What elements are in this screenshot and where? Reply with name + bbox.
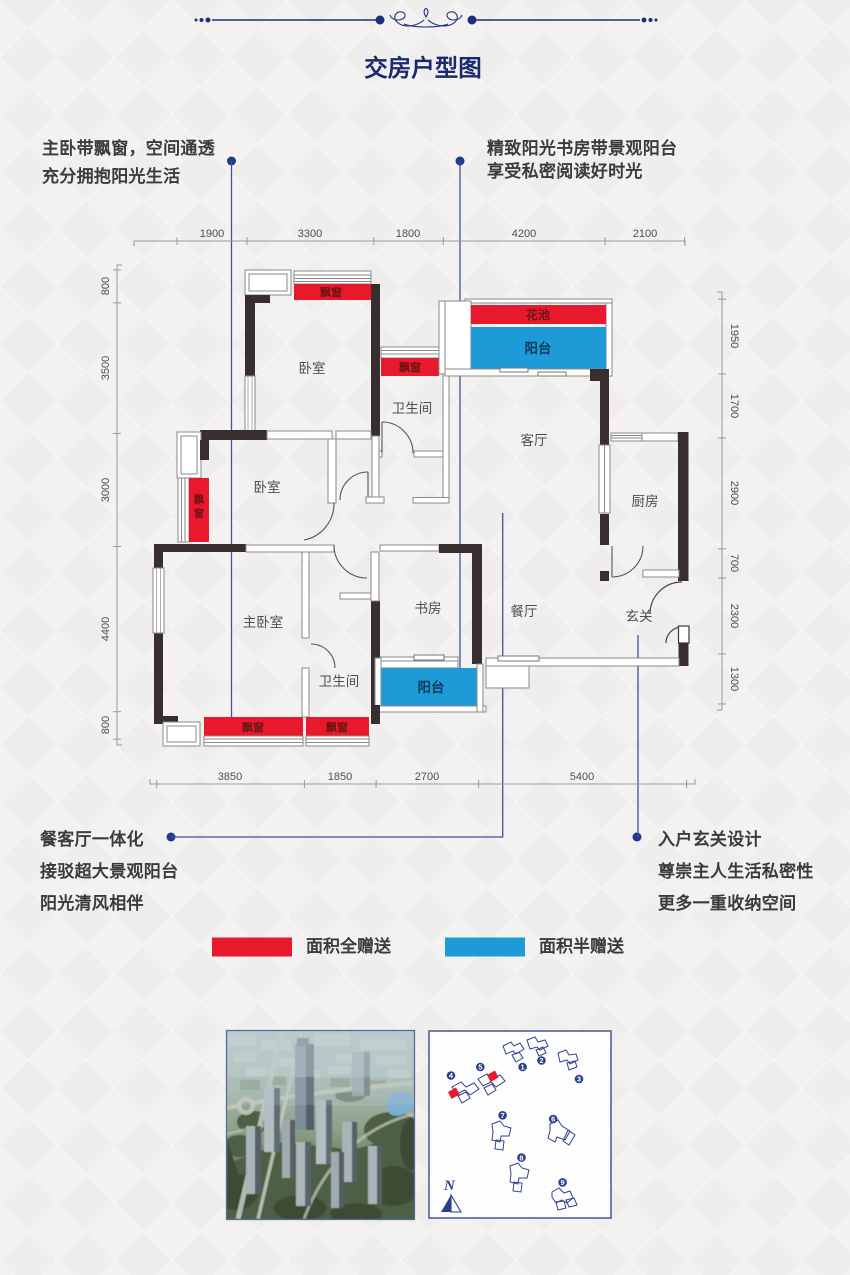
svg-text:飘窗: 飘窗: [399, 360, 421, 374]
svg-text:5400: 5400: [570, 771, 594, 783]
svg-text:餐客厅一体化: 餐客厅一体化: [40, 829, 144, 849]
svg-text:1900: 1900: [200, 228, 224, 240]
svg-text:5: 5: [478, 1063, 482, 1072]
svg-text:3850: 3850: [218, 771, 242, 783]
svg-text:交房户型图: 交房户型图: [364, 54, 482, 81]
svg-text:1800: 1800: [396, 228, 420, 240]
svg-text:3000: 3000: [100, 478, 112, 502]
svg-text:卫生间: 卫生间: [319, 674, 360, 689]
svg-text:1950: 1950: [728, 324, 740, 348]
svg-text:2: 2: [539, 1056, 543, 1065]
svg-text:花池: 花池: [526, 307, 550, 322]
svg-text:1850: 1850: [328, 771, 352, 783]
svg-text:充分拥抱阳光生活: 充分拥抱阳光生活: [42, 166, 180, 186]
svg-text:2700: 2700: [415, 771, 439, 783]
svg-text:更多一重收纳空间: 更多一重收纳空间: [658, 893, 796, 913]
svg-text:阳台: 阳台: [525, 340, 552, 356]
svg-text:主卧室: 主卧室: [243, 614, 284, 630]
svg-text:800: 800: [100, 716, 112, 734]
svg-text:2300: 2300: [728, 604, 740, 628]
svg-text:尊崇主人生活私密性: 尊崇主人生活私密性: [658, 861, 814, 881]
svg-text:卧室: 卧室: [299, 360, 326, 376]
svg-text:800: 800: [100, 277, 112, 295]
svg-text:阳光清风相伴: 阳光清风相伴: [40, 893, 144, 913]
svg-text:3300: 3300: [298, 228, 322, 240]
svg-text:餐厅: 餐厅: [511, 604, 538, 619]
svg-text:书房: 书房: [415, 601, 442, 616]
svg-text:阳台: 阳台: [418, 679, 445, 695]
svg-text:卧室: 卧室: [254, 479, 281, 495]
svg-text:厨房: 厨房: [632, 494, 659, 509]
svg-text:飘窗: 飘窗: [320, 285, 342, 299]
svg-text:4400: 4400: [100, 617, 112, 641]
svg-text:窗: 窗: [194, 507, 204, 520]
svg-text:卫生间: 卫生间: [392, 401, 433, 416]
svg-text:8: 8: [519, 1153, 523, 1162]
svg-text:1300: 1300: [728, 667, 740, 691]
svg-text:入户玄关设计: 入户玄关设计: [658, 829, 762, 849]
svg-text:1700: 1700: [728, 394, 740, 418]
svg-text:玄关: 玄关: [626, 608, 653, 624]
svg-text:2900: 2900: [728, 481, 740, 505]
svg-text:飘窗: 飘窗: [326, 720, 348, 734]
svg-text:3500: 3500: [100, 356, 112, 380]
svg-text:N: N: [443, 1178, 456, 1194]
svg-text:客厅: 客厅: [521, 432, 548, 448]
svg-text:2100: 2100: [633, 228, 657, 240]
svg-text:接驳超大景观阳台: 接驳超大景观阳台: [40, 861, 178, 881]
svg-text:700: 700: [728, 554, 740, 572]
svg-text:精致阳光书房带景观阳台: 精致阳光书房带景观阳台: [487, 138, 677, 158]
svg-text:面积全赠送: 面积全赠送: [306, 936, 392, 956]
svg-text:主卧带飘窗，空间通透: 主卧带飘窗，空间通透: [42, 138, 216, 158]
svg-text:飘: 飘: [194, 494, 204, 506]
svg-text:飘窗: 飘窗: [242, 720, 264, 734]
svg-text:4200: 4200: [512, 228, 536, 240]
svg-text:面积半赠送: 面积半赠送: [539, 936, 625, 956]
svg-text:6: 6: [551, 1115, 555, 1124]
svg-text:9: 9: [561, 1178, 565, 1187]
svg-text:享受私密阅读好时光: 享受私密阅读好时光: [487, 161, 643, 181]
svg-text:7: 7: [501, 1111, 505, 1120]
svg-text:3: 3: [577, 1075, 581, 1084]
svg-text:1: 1: [521, 1063, 525, 1072]
